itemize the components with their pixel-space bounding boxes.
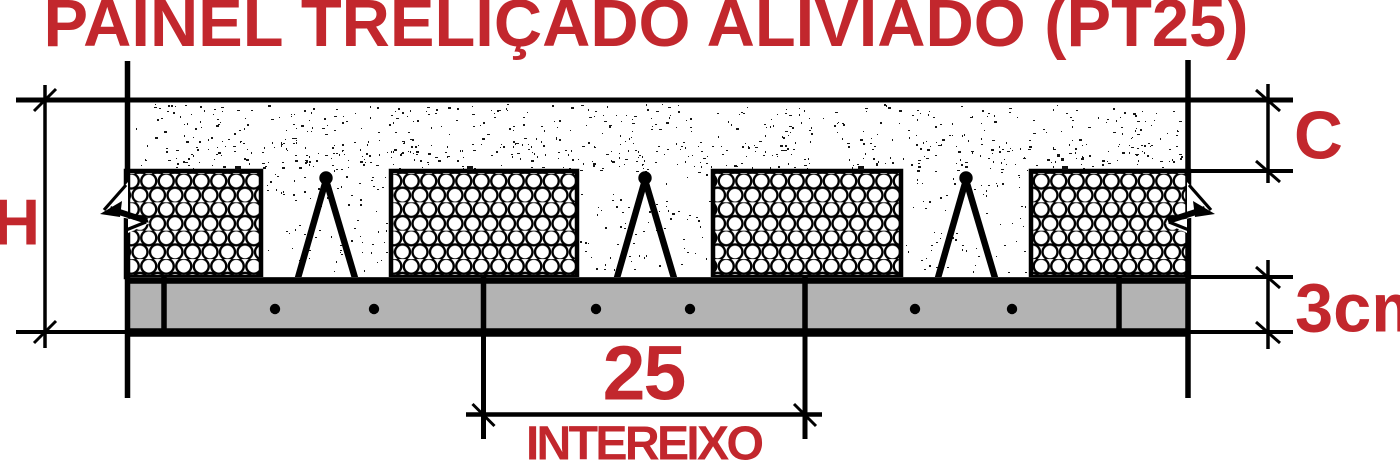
- svg-text:H: H: [0, 186, 40, 259]
- svg-text:PAINEL TRELIÇADO ALIVIADO (PT2: PAINEL TRELIÇADO ALIVIADO (PT25): [44, 0, 1249, 61]
- svg-text:3cm: 3cm: [1295, 270, 1400, 347]
- svg-text:INTEREIXO: INTEREIXO: [526, 417, 762, 461]
- svg-text:C: C: [1294, 99, 1343, 174]
- svg-text:25: 25: [603, 331, 685, 417]
